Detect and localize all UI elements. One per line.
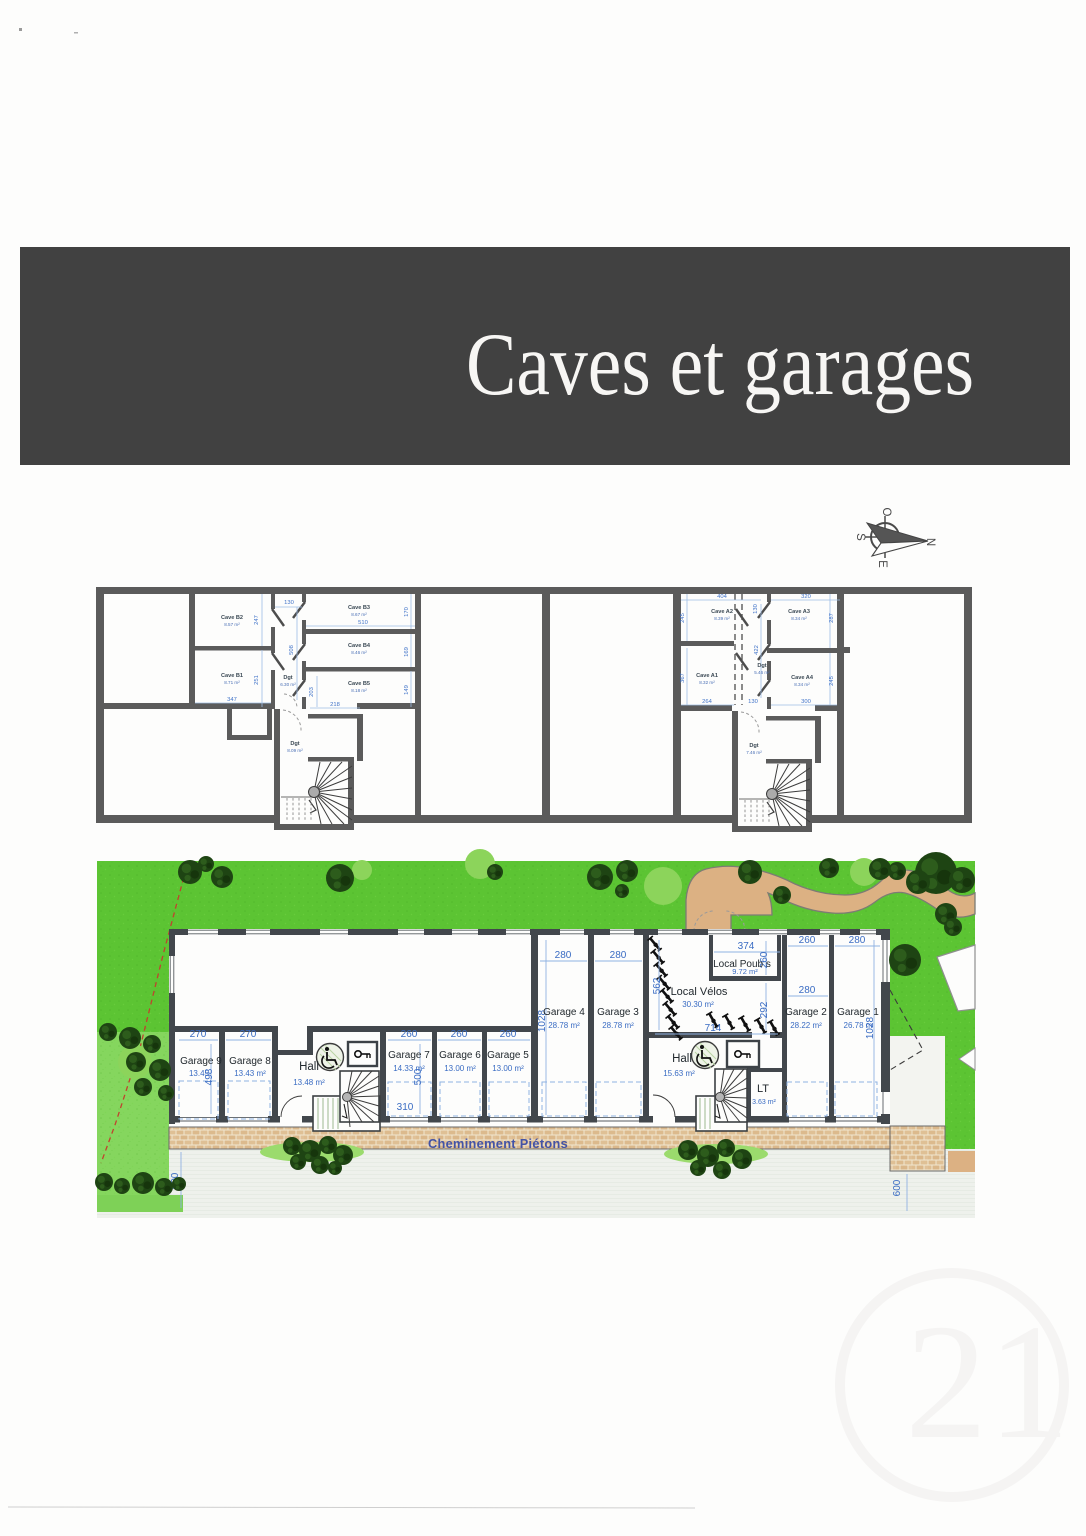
svg-text:245: 245 bbox=[829, 676, 835, 686]
svg-text:Dgt: Dgt bbox=[283, 675, 292, 681]
svg-text:21: 21 bbox=[905, 1290, 1070, 1473]
svg-text:Garage 4: Garage 4 bbox=[543, 1007, 585, 1018]
svg-text:251: 251 bbox=[254, 675, 260, 685]
svg-text:8.39 m²: 8.39 m² bbox=[714, 616, 730, 621]
svg-text:13.00 m²: 13.00 m² bbox=[492, 1064, 524, 1073]
svg-text:Cave A2: Cave A2 bbox=[711, 609, 733, 615]
svg-text:Garage 9: Garage 9 bbox=[180, 1056, 222, 1067]
svg-text:Dgt: Dgt bbox=[749, 743, 758, 749]
svg-text:247: 247 bbox=[254, 615, 260, 625]
svg-text:28.78 m²: 28.78 m² bbox=[548, 1021, 580, 1030]
svg-text:562: 562 bbox=[652, 977, 663, 994]
svg-text:8.34 m²: 8.34 m² bbox=[791, 616, 807, 621]
svg-text:260: 260 bbox=[451, 1029, 468, 1040]
svg-text:Garage 1: Garage 1 bbox=[837, 1007, 879, 1018]
svg-text:Garage 3: Garage 3 bbox=[597, 1007, 639, 1018]
svg-text:270: 270 bbox=[240, 1029, 257, 1040]
svg-text:N: N bbox=[924, 538, 936, 546]
svg-text:E: E bbox=[876, 560, 888, 568]
svg-text:13.43 m²: 13.43 m² bbox=[234, 1069, 266, 1078]
svg-text:Caves et garages: Caves et garages bbox=[466, 316, 974, 414]
svg-text:15.63 m²: 15.63 m² bbox=[663, 1069, 695, 1078]
svg-text:245: 245 bbox=[680, 613, 686, 623]
svg-text:280: 280 bbox=[799, 985, 816, 996]
svg-text:Cave B2: Cave B2 bbox=[221, 615, 243, 621]
svg-text:13.00 m²: 13.00 m² bbox=[444, 1064, 476, 1073]
svg-text:287: 287 bbox=[829, 613, 835, 623]
svg-text:9.72 m²: 9.72 m² bbox=[732, 967, 758, 976]
svg-text:30.30 m²: 30.30 m² bbox=[682, 1000, 714, 1009]
svg-text:320: 320 bbox=[801, 594, 811, 600]
svg-text:260: 260 bbox=[799, 935, 816, 946]
svg-text:Cave B4: Cave B4 bbox=[348, 643, 371, 649]
svg-text:260: 260 bbox=[401, 1029, 418, 1040]
svg-text:170: 170 bbox=[404, 607, 410, 617]
svg-text:8.18 m²: 8.18 m² bbox=[351, 688, 367, 693]
svg-text:510: 510 bbox=[358, 620, 368, 626]
svg-text:14.33 m²: 14.33 m² bbox=[393, 1064, 425, 1073]
svg-text:347: 347 bbox=[227, 697, 237, 703]
svg-text:Garage 6: Garage 6 bbox=[439, 1050, 481, 1061]
svg-text:Cave A4: Cave A4 bbox=[791, 675, 814, 681]
svg-text:280: 280 bbox=[849, 935, 866, 946]
svg-text:S: S bbox=[854, 533, 866, 541]
svg-text:Garage 8: Garage 8 bbox=[229, 1056, 271, 1067]
svg-text:LT: LT bbox=[757, 1083, 769, 1095]
svg-text:13.45: 13.45 bbox=[189, 1069, 210, 1078]
svg-text:280: 280 bbox=[610, 950, 627, 961]
svg-text:8.32 m²: 8.32 m² bbox=[699, 680, 715, 685]
svg-text:Cave A3: Cave A3 bbox=[788, 609, 810, 615]
svg-text:367: 367 bbox=[680, 673, 686, 683]
svg-text:149: 149 bbox=[404, 685, 410, 695]
svg-text:130: 130 bbox=[284, 600, 294, 606]
svg-text:28.78 m²: 28.78 m² bbox=[602, 1021, 634, 1030]
svg-text:130: 130 bbox=[748, 699, 758, 705]
svg-text:270: 270 bbox=[190, 1029, 207, 1040]
svg-text:8.67 m²: 8.67 m² bbox=[351, 612, 367, 617]
svg-text:Hall: Hall bbox=[299, 1061, 319, 1073]
svg-text:7.46 m²: 7.46 m² bbox=[746, 750, 762, 755]
svg-text:Cheminement Piétons: Cheminement Piétons bbox=[428, 1136, 568, 1151]
svg-text:26.78 m: 26.78 m bbox=[844, 1021, 873, 1030]
svg-text:422: 422 bbox=[754, 645, 760, 655]
svg-text:8.09 m²: 8.09 m² bbox=[287, 748, 303, 753]
svg-text:292: 292 bbox=[759, 1001, 770, 1018]
svg-text:6.30 m²: 6.30 m² bbox=[280, 682, 296, 687]
svg-text:Garage 2: Garage 2 bbox=[785, 1007, 827, 1018]
svg-text:Cave B3: Cave B3 bbox=[348, 605, 370, 611]
svg-text:310: 310 bbox=[397, 1102, 414, 1113]
svg-text:28.22 m²: 28.22 m² bbox=[790, 1021, 822, 1030]
svg-text:5.46 m²: 5.46 m² bbox=[754, 670, 770, 675]
svg-text:13.48 m²: 13.48 m² bbox=[293, 1078, 325, 1087]
svg-text:Dgt: Dgt bbox=[757, 663, 766, 669]
svg-text:600: 600 bbox=[892, 1179, 903, 1196]
svg-text:Cave A1: Cave A1 bbox=[696, 673, 718, 679]
svg-text:508: 508 bbox=[289, 645, 295, 655]
svg-text:8.57 m²: 8.57 m² bbox=[224, 622, 240, 627]
svg-text:8.71 m²: 8.71 m² bbox=[224, 680, 240, 685]
svg-text:Dgt: Dgt bbox=[290, 741, 299, 747]
svg-text:300: 300 bbox=[801, 699, 811, 705]
svg-text:8.46 m²: 8.46 m² bbox=[351, 650, 367, 655]
svg-text:8.34 m²: 8.34 m² bbox=[794, 682, 810, 687]
svg-text:169: 169 bbox=[404, 647, 410, 657]
svg-text:Cave B5: Cave B5 bbox=[348, 681, 370, 687]
svg-text:374: 374 bbox=[738, 941, 755, 952]
svg-text:404: 404 bbox=[717, 594, 727, 600]
svg-text:Garage 5: Garage 5 bbox=[487, 1050, 529, 1061]
svg-text:130: 130 bbox=[753, 604, 759, 614]
svg-text:O: O bbox=[880, 508, 892, 517]
svg-text:Hall: Hall bbox=[672, 1053, 692, 1065]
svg-text:Cave B1: Cave B1 bbox=[221, 673, 243, 679]
svg-text:280: 280 bbox=[555, 950, 572, 961]
svg-text:203: 203 bbox=[309, 687, 315, 697]
svg-text:218: 218 bbox=[330, 702, 340, 708]
svg-text:Garage 7: Garage 7 bbox=[388, 1050, 430, 1061]
svg-text:264: 264 bbox=[702, 699, 712, 705]
svg-text:260: 260 bbox=[500, 1029, 517, 1040]
svg-text:3.63 m²: 3.63 m² bbox=[752, 1099, 776, 1106]
svg-text:Local Vélos: Local Vélos bbox=[671, 986, 728, 998]
svg-text:714: 714 bbox=[705, 1023, 722, 1034]
